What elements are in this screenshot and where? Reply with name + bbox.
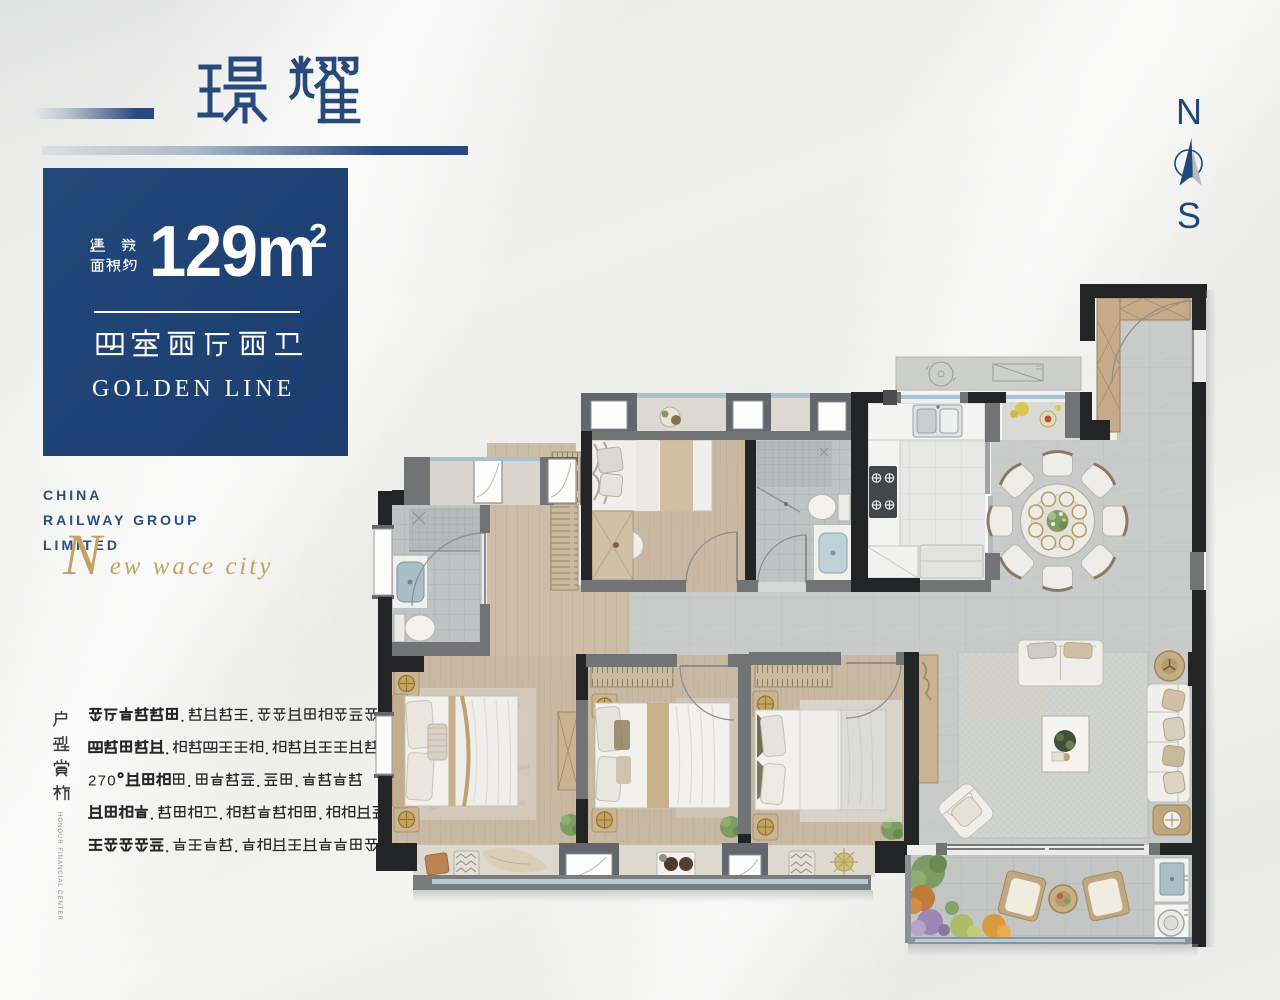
svg-text:N: N [1176,91,1202,132]
svg-text:2: 2 [88,772,96,789]
svg-text:S: S [1177,195,1201,236]
svg-text:7: 7 [98,772,106,789]
svg-text:0: 0 [107,772,115,789]
